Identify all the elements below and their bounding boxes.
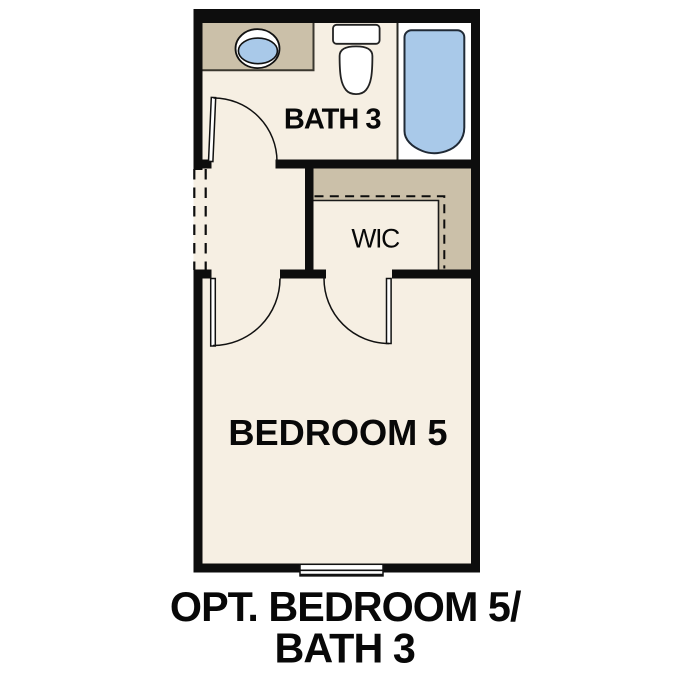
svg-text:BATH 3: BATH 3 [284, 103, 381, 135]
svg-text:WIC: WIC [351, 224, 400, 254]
svg-text:OPT. BEDROOM 5/: OPT. BEDROOM 5/ [170, 584, 522, 630]
svg-text:BEDROOM 5: BEDROOM 5 [228, 412, 447, 453]
svg-text:BATH 3: BATH 3 [275, 625, 415, 671]
